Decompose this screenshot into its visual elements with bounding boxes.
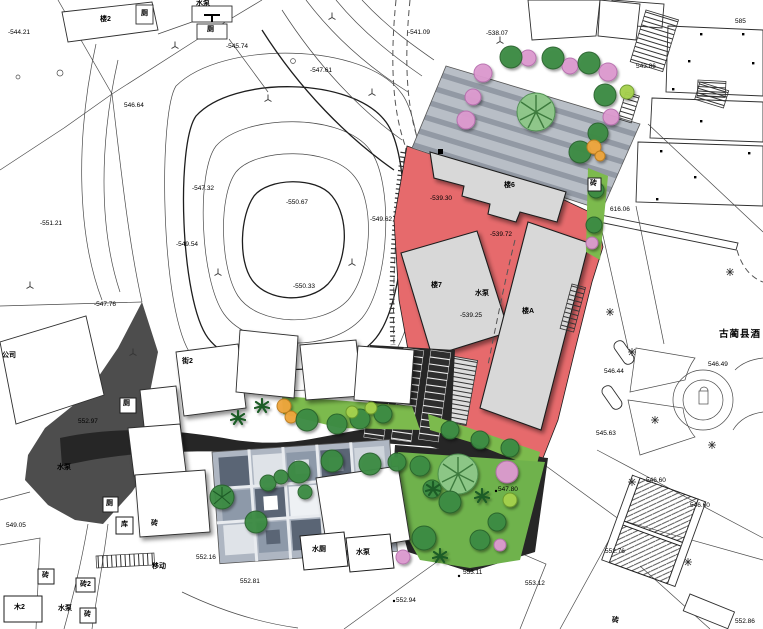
long-thin-building: [599, 215, 738, 250]
pump-bc-box: [346, 534, 394, 572]
big-tree-se: [438, 454, 478, 494]
plaza-back-building2: [598, 0, 640, 40]
monument: [699, 391, 708, 404]
topleft-building-cluster: [62, 2, 268, 92]
site-plan-canvas: -544.21 楼2 厕 水泵 厕 -545.74 546.64 -547.61…: [0, 0, 763, 629]
pump-marker: [438, 149, 443, 154]
courtyard-tree: [210, 485, 234, 509]
hatched-building: [602, 475, 706, 586]
right-cadastral-buildings: [599, 0, 763, 348]
toilet-box-mid: [120, 398, 136, 413]
plaza-back-building1: [528, 0, 600, 40]
zhuan-box-mid: [588, 178, 601, 191]
shuice-box: [300, 532, 348, 570]
roundabout: [600, 339, 763, 455]
plaza-center-tree: [517, 93, 555, 131]
site-plan-drawing: [0, 0, 763, 629]
